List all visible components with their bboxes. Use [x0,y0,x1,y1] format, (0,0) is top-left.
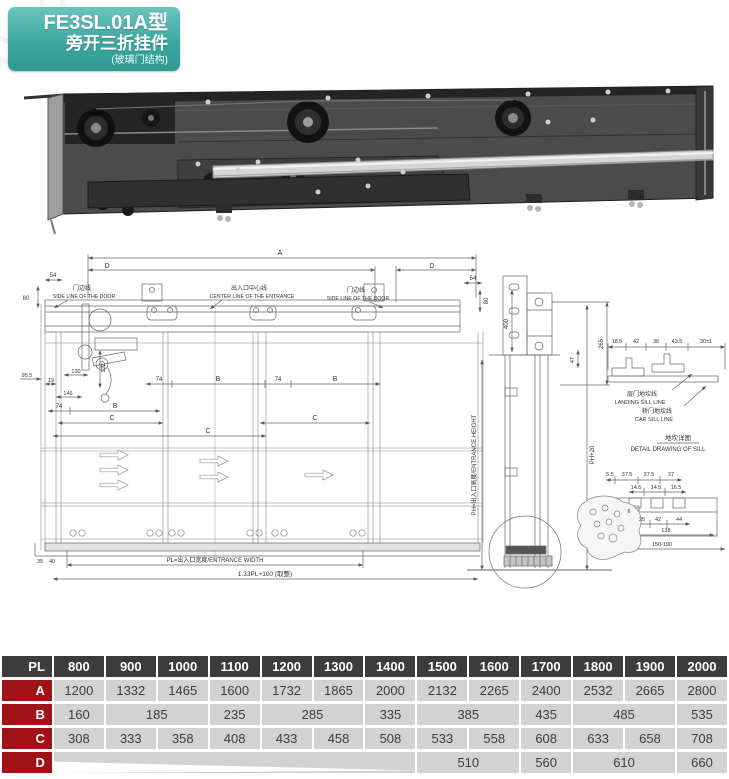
technical-drawing-svg: A D D 54 54 80 80 门边线 SIDE LINE OF THE D… [12,240,729,645]
table-cell: 2800 [677,680,727,701]
dim-19: 19 [48,378,54,384]
dim-c: C [109,415,114,422]
table-cell: 2265 [469,680,519,701]
table-cell [54,752,415,773]
dim-40: 40 [49,559,55,565]
table-cell: 708 [677,728,727,749]
table-cell: 1865 [314,680,364,701]
table-cell: 1465 [158,680,208,701]
table-col-header: 1100 [210,656,260,677]
operator-photo-svg [8,82,729,237]
table-cell: 333 [106,728,156,749]
dim-a: A [278,250,283,257]
dim-ph20: PH+20 [590,445,596,464]
dim-80-right: 80 [484,297,490,304]
cs-dim-37: 37 [668,472,674,478]
table-cell: 235 [210,704,260,725]
table-col-header: 1600 [469,656,519,677]
table-cell: 558 [469,728,519,749]
sill-dim-30: 30±1 [700,339,712,345]
datasheet-page: FE3SL.01A型 旁开三折挂件 (玻璃门结构) [0,0,729,779]
cs-dim-5-5: 5.5 [606,472,614,478]
product-subtitle: (玻璃门结构) [8,54,168,67]
landing-sill-en: LANDING SILL LINE [615,400,666,406]
table-cell: 433 [262,728,312,749]
product-badge: FE3SL.01A型 旁开三折挂件 (玻璃门结构) [8,7,180,71]
dim-130: 130 [71,369,80,375]
cs-dim-37-5b: 37.5 [644,472,655,478]
door-motion-arrows [100,450,333,490]
table-cell: 185 [106,704,208,725]
dim-c: C [312,415,317,422]
dim-265: 265 [599,338,605,349]
table-cell: 308 [54,728,104,749]
table-cell: 285 [262,704,364,725]
side-line-right-en: SIDE LINE OF THE DOOR [327,296,390,302]
guide-shoes [70,530,365,536]
table-cell: 160 [54,704,104,725]
dim-b: B [333,376,338,383]
dim-d-right: D [429,263,434,270]
side-line-left-en: SIDE LINE OF THE DOOR [53,294,116,300]
dim-c: C [205,428,210,435]
table-cell: 485 [573,704,675,725]
table-cell: 385 [417,704,519,725]
table-cell: 1332 [106,680,156,701]
table-col-header: 1800 [573,656,623,677]
dim-47: 47 [570,357,576,363]
table-cell: 408 [210,728,260,749]
table-cell: 2665 [625,680,675,701]
table-row: D510560610660 [2,752,727,773]
landing-sill-cn: 层门地坎线 [627,390,657,398]
cs-dim-150-190: 150-190 [652,542,672,548]
center-line-cn: 出入口中心线 [231,284,267,292]
formula-label: 1.33PL+100 (取整) [238,569,292,578]
table-cell: 2532 [573,680,623,701]
operator-photo [8,82,729,237]
table-cell: 1732 [262,680,312,701]
product-name: 旁开三折挂件 [8,34,168,54]
table-cell: 633 [573,728,623,749]
dimension-table-wrap: PL80090010001100120013001400150016001700… [0,653,729,776]
table-col-header: 1500 [417,656,467,677]
table-header-row: PL80090010001100120013001400150016001700… [2,656,727,677]
product-model: FE3SL.01A型 [8,13,168,34]
table-cell: 660 [677,752,727,773]
table-row-label: B [2,704,52,725]
dim-95-5: 95.5 [22,373,33,379]
table-row-label: D [2,752,52,773]
table-cell: 458 [314,728,364,749]
table-col-header: 1000 [158,656,208,677]
table-cell: 560 [521,752,571,773]
dim-b: B [113,403,118,410]
table-row: B160185235285335385435485535 [2,704,727,725]
table-corner-pl: PL [2,656,52,677]
dim-54-left: 54 [50,273,57,279]
table-col-header: 800 [54,656,104,677]
empty-cell-wedge [54,752,415,773]
cs-dim-16-5: 16.5 [671,485,682,491]
table-cell: 2000 [365,680,415,701]
table-cell: 658 [625,728,675,749]
dim-74: 74 [275,377,282,383]
table-row-label: C [2,728,52,749]
dimension-table: PL80090010001100120013001400150016001700… [0,653,729,776]
sill-detail-title-en: DETAIL DRAWING OF SILL [631,447,706,453]
cs-dim-44: 44 [676,517,682,523]
table-cell: 2132 [417,680,467,701]
table-col-header: 1700 [521,656,571,677]
sill-detail-title-cn: 地坎详图 [665,433,691,442]
cs-dim-42: 42 [655,517,661,523]
table-cell: 435 [521,704,571,725]
dim-d-left: D [104,263,109,270]
center-line-en: CENTER LINE OF THE ENTRANCE [210,294,295,300]
dim-54-right: 54 [470,276,477,282]
table-cell: 533 [417,728,467,749]
table-col-header: 1300 [314,656,364,677]
table-cell: 2400 [521,680,571,701]
table-cell: 1600 [210,680,260,701]
table-cell: 335 [365,704,415,725]
dim-400: 400 [504,318,510,329]
table-col-header: 1200 [262,656,312,677]
car-sill-cn: 轿门地坎线 [642,407,672,415]
dim-146: 146 [63,391,72,397]
cs-dim-14-5: 14.5 [631,485,642,491]
dim-74: 74 [56,404,63,410]
dim-74: 74 [156,377,163,383]
dim-35: 35 [37,559,43,565]
table-cell: 508 [365,728,415,749]
dim-122: 122 [101,363,107,372]
table-cell: 535 [677,704,727,725]
table-row: C308333358408433458508533558608633658708 [2,728,727,749]
table-cell: 608 [521,728,571,749]
sill-dim-18-5: 18.5 [612,339,623,345]
table-col-header: 2000 [677,656,727,677]
entrance-height-label: PH=出入口高度/ENTRANCE HEIGHT [470,414,478,515]
table-cell: 610 [573,752,675,773]
cs-dim-37-5: 37.5 [622,472,633,478]
cs-dim-138: 138 [661,528,670,534]
sill-dim-42: 42 [633,339,639,345]
cs-dim-6: 6 [627,509,630,515]
car-sill-en: CAR SILL LINE [635,417,673,423]
side-line-left-cn: 门边线 [73,284,91,292]
entrance-width-label: PL=出入口宽度/ENTRANCE WIDTH [167,556,264,564]
table-row: A120013321465160017321865200021322265240… [2,680,727,701]
sill-dim-43-5: 43.5 [672,339,683,345]
sill-dim-36: 36 [653,339,659,345]
dim-b: B [216,376,221,383]
table-col-header: 1400 [365,656,415,677]
elevation-view [20,254,483,579]
cs-dim-14-5b: 14.5 [651,485,662,491]
table-row-label: A [2,680,52,701]
table-cell: 510 [417,752,519,773]
table-col-header: 900 [106,656,156,677]
cs-dim-25: 25 [639,517,645,523]
table-col-header: 1900 [625,656,675,677]
sill-detail-view [608,343,725,443]
table-cell: 358 [158,728,208,749]
table-cell: 1200 [54,680,104,701]
technical-drawing: A D D 54 54 80 80 门边线 SIDE LINE OF THE D… [12,240,729,645]
dim-80-left: 80 [23,296,30,302]
side-line-right-cn: 门边线 [347,286,365,294]
